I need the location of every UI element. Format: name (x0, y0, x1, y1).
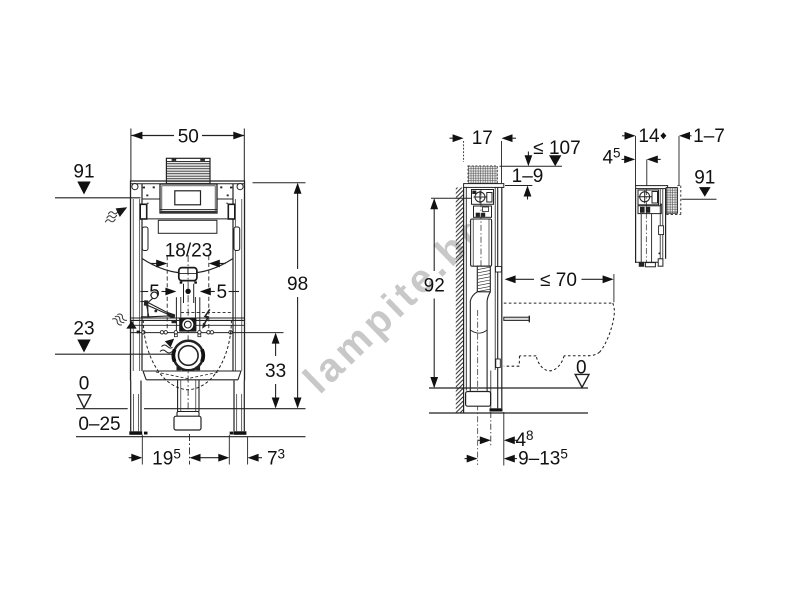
svg-text:14: 14 (638, 126, 660, 147)
svg-text:33: 33 (265, 361, 286, 382)
svg-text:91: 91 (694, 167, 715, 188)
svg-text:91: 91 (73, 161, 94, 182)
svg-text:5: 5 (217, 282, 228, 303)
svg-text:92: 92 (424, 276, 445, 297)
svg-text:17: 17 (472, 128, 493, 149)
svg-text:98: 98 (287, 274, 308, 295)
svg-text:≤ 70: ≤ 70 (540, 270, 577, 291)
svg-text:23: 23 (73, 319, 94, 340)
svg-text:0: 0 (79, 374, 90, 395)
svg-text:50: 50 (178, 127, 199, 148)
svg-text:1–9: 1–9 (512, 166, 544, 187)
svg-text:1–7: 1–7 (693, 126, 725, 147)
svg-text:0–25: 0–25 (78, 414, 120, 435)
